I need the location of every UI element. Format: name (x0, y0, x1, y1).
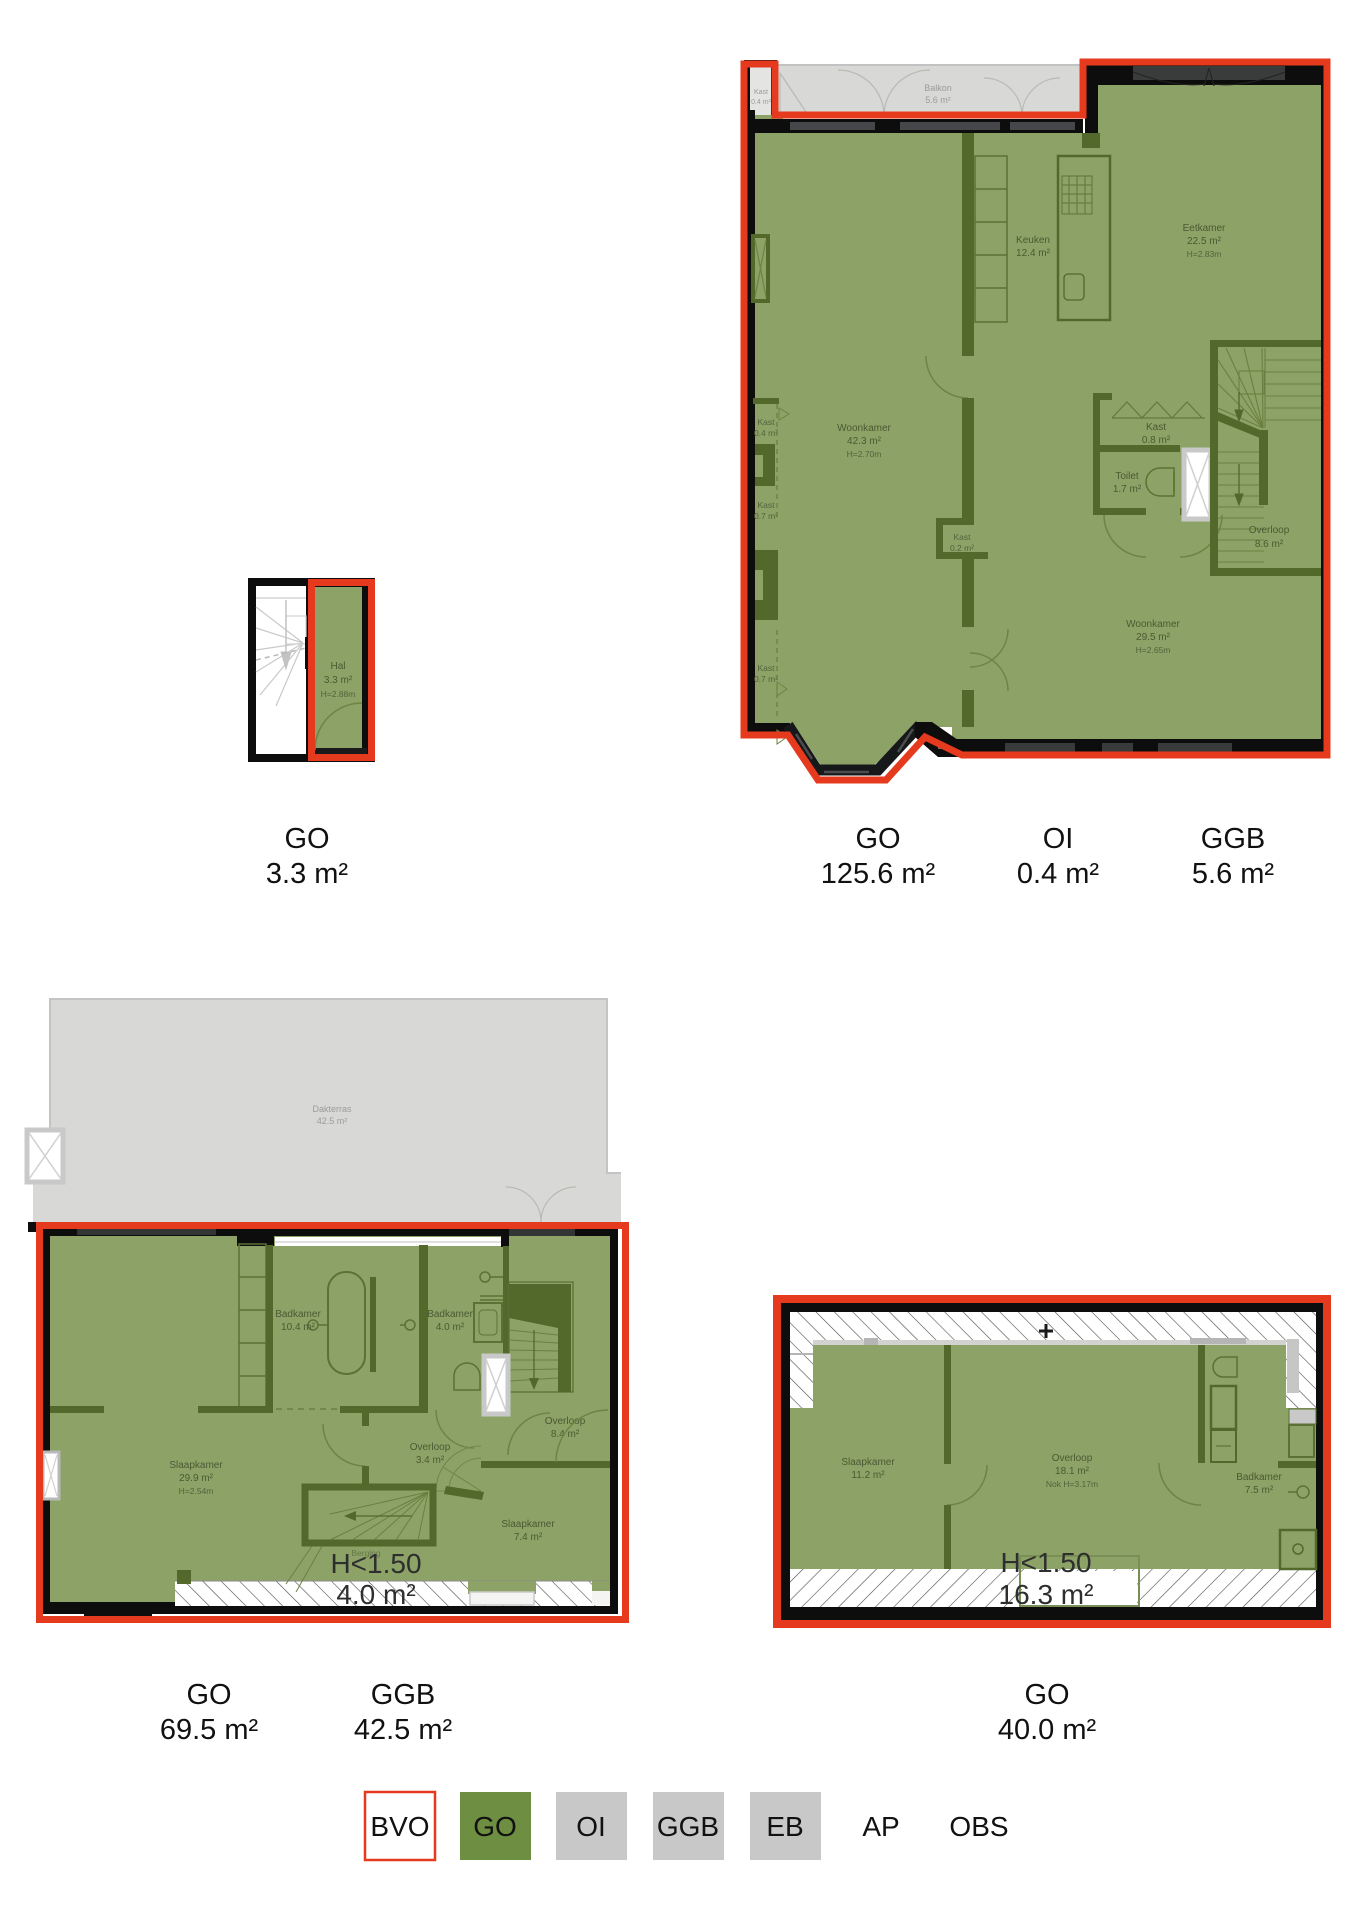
svg-text:GO: GO (1024, 1679, 1069, 1711)
svg-text:Overloop: Overloop (1249, 525, 1290, 536)
svg-text:Woonkamer: Woonkamer (1126, 619, 1180, 630)
svg-text:Kast: Kast (757, 663, 775, 673)
svg-text:Slaapkamer: Slaapkamer (841, 1457, 895, 1468)
svg-text:0.7 m²: 0.7 m² (754, 674, 778, 684)
svg-text:GO: GO (855, 823, 900, 855)
svg-text:Badkamer: Badkamer (275, 1309, 321, 1320)
svg-text:Balkon: Balkon (924, 83, 952, 93)
svg-text:Kast: Kast (757, 500, 775, 510)
svg-text:0.8 m²: 0.8 m² (1142, 435, 1171, 446)
svg-text:12.4 m²: 12.4 m² (1016, 248, 1051, 259)
svg-text:Hal: Hal (330, 661, 345, 672)
svg-text:GGB: GGB (1201, 823, 1265, 855)
svg-text:4.0 m²: 4.0 m² (436, 1322, 465, 1333)
svg-text:0.4 m²: 0.4 m² (1017, 858, 1100, 890)
svg-text:Overloop: Overloop (410, 1442, 451, 1453)
svg-text:42.3 m²: 42.3 m² (847, 436, 882, 447)
svg-text:BVO: BVO (370, 1811, 429, 1842)
svg-text:GO: GO (473, 1811, 517, 1842)
svg-text:3.4 m²: 3.4 m² (416, 1455, 445, 1466)
svg-text:0.4 m²: 0.4 m² (751, 99, 772, 106)
svg-text:10.4 m²: 10.4 m² (281, 1322, 316, 1333)
svg-text:5.6 m²: 5.6 m² (925, 95, 951, 105)
svg-text:40.0 m²: 40.0 m² (998, 1714, 1097, 1746)
svg-text:29.5 m²: 29.5 m² (1136, 632, 1171, 643)
svg-text:OI: OI (1043, 823, 1074, 855)
svg-text:Kast: Kast (754, 89, 768, 96)
svg-text:Nok H=3.17m: Nok H=3.17m (1046, 1479, 1098, 1489)
svg-text:42.5 m²: 42.5 m² (317, 1116, 348, 1126)
svg-text:H=2.65m: H=2.65m (1136, 645, 1171, 655)
svg-text:Kast: Kast (1146, 422, 1166, 433)
svg-text:Kast: Kast (757, 417, 775, 427)
svg-text:Kast: Kast (953, 532, 971, 542)
svg-text:8.4 m²: 8.4 m² (551, 1429, 580, 1440)
svg-text:29.9 m²: 29.9 m² (179, 1473, 214, 1484)
svg-text:H<1.50: H<1.50 (330, 1548, 421, 1579)
svg-text:GGB: GGB (657, 1811, 719, 1842)
svg-text:5.6 m²: 5.6 m² (1192, 858, 1275, 890)
svg-text:Keuken: Keuken (1016, 235, 1050, 246)
svg-text:AP: AP (862, 1811, 899, 1842)
svg-text:Dakterras: Dakterras (312, 1104, 352, 1114)
svg-text:Slaapkamer: Slaapkamer (169, 1460, 223, 1471)
svg-text:22.5 m²: 22.5 m² (1187, 236, 1222, 247)
svg-text:1.7 m²: 1.7 m² (1113, 484, 1142, 495)
svg-text:Woonkamer: Woonkamer (837, 423, 891, 434)
svg-text:125.6 m²: 125.6 m² (821, 858, 936, 890)
svg-text:3.3 m²: 3.3 m² (324, 675, 353, 686)
svg-text:7.5 m²: 7.5 m² (1245, 1485, 1274, 1496)
svg-text:Slaapkamer: Slaapkamer (501, 1519, 555, 1530)
svg-text:H=2.83m: H=2.83m (1187, 249, 1222, 259)
svg-text:11.2 m²: 11.2 m² (851, 1470, 885, 1481)
svg-text:Overloop: Overloop (1052, 1453, 1093, 1464)
svg-text:GO: GO (186, 1679, 231, 1711)
svg-text:4.0 m²: 4.0 m² (336, 1579, 415, 1610)
svg-text:OBS: OBS (949, 1811, 1008, 1842)
svg-text:Badkamer: Badkamer (1236, 1472, 1282, 1483)
svg-text:EB: EB (766, 1811, 803, 1842)
svg-text:Toilet: Toilet (1115, 471, 1139, 482)
svg-text:OI: OI (576, 1811, 606, 1842)
svg-text:H<1.50: H<1.50 (1000, 1547, 1091, 1578)
svg-text:Eetkamer: Eetkamer (1183, 223, 1226, 234)
svg-text:7.4 m²: 7.4 m² (514, 1532, 543, 1543)
svg-text:0.2 m²: 0.2 m² (950, 543, 974, 553)
svg-text:H=2.88m: H=2.88m (321, 689, 356, 699)
svg-text:0.4 m²: 0.4 m² (754, 428, 778, 438)
svg-text:16.3 m²: 16.3 m² (999, 1579, 1094, 1610)
svg-text:Badkamer: Badkamer (427, 1309, 473, 1320)
svg-text:GGB: GGB (371, 1679, 435, 1711)
svg-text:42.5 m²: 42.5 m² (354, 1714, 453, 1746)
svg-text:H=2.70m: H=2.70m (847, 449, 882, 459)
svg-text:69.5 m²: 69.5 m² (160, 1714, 259, 1746)
svg-text:GO: GO (284, 823, 329, 855)
svg-text:8.6 m²: 8.6 m² (1255, 539, 1284, 550)
svg-text:0.7 m²: 0.7 m² (754, 511, 778, 521)
svg-text:H=2.54m: H=2.54m (179, 1486, 214, 1496)
svg-text:3.3 m²: 3.3 m² (266, 858, 349, 890)
svg-text:18.1 m²: 18.1 m² (1055, 1466, 1090, 1477)
